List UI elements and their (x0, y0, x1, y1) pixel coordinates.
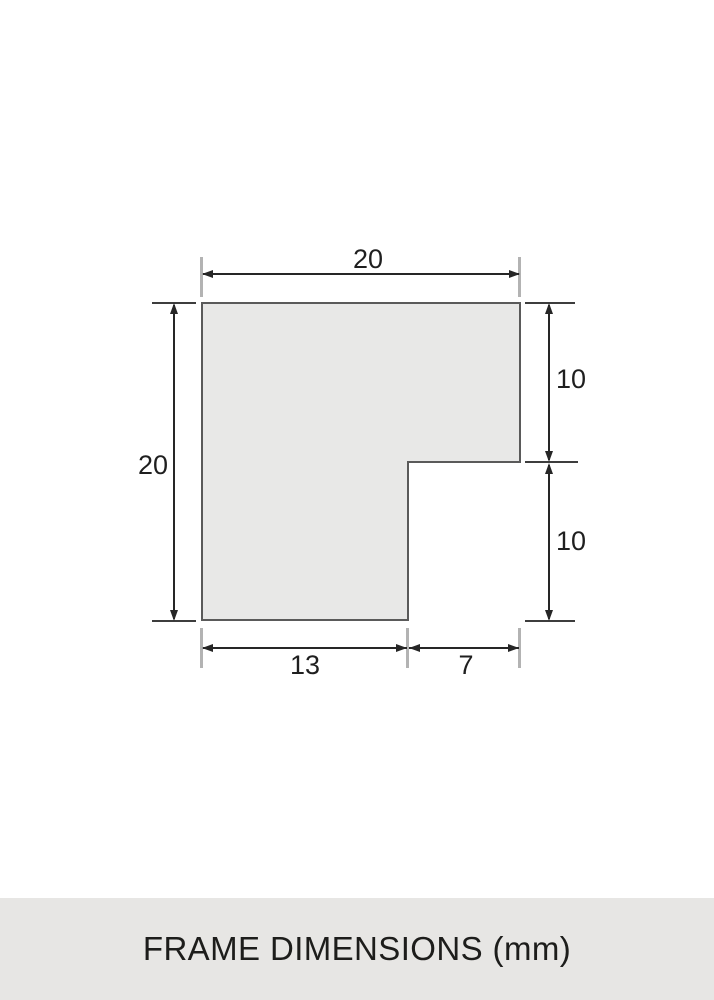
dimension-line-right-upper (548, 305, 550, 460)
arrowhead-top-right (509, 270, 520, 278)
dimension-line-right-lower (548, 465, 550, 619)
arrowhead-right-upper-up (545, 303, 553, 314)
dim-label-right-lower: 10 (556, 528, 612, 554)
dim-label-top-width: 20 (340, 246, 396, 272)
arrowhead-bottom7-right (508, 644, 519, 652)
dim-label-bottom-right: 7 (438, 652, 494, 678)
arrowhead-right-lower-down (545, 610, 553, 621)
dimension-line-bottom-right (409, 647, 519, 649)
arrowhead-left-down (170, 610, 178, 621)
dimension-line-left (173, 305, 175, 619)
dimension-line-bottom-left (203, 647, 407, 649)
arrowhead-bottom13-right (396, 644, 407, 652)
arrowhead-right-upper-down (545, 451, 553, 462)
frame-cross-section-polygon (202, 303, 520, 620)
frame-dimension-diagram: 20 20 10 10 13 7 (0, 0, 714, 1000)
dim-label-left-height: 20 (112, 452, 168, 478)
caption-text: FRAME DIMENSIONS (mm) (143, 930, 571, 968)
dim-label-right-upper: 10 (556, 366, 612, 392)
dim-label-bottom-left: 13 (277, 652, 333, 678)
arrowhead-bottom13-left (202, 644, 213, 652)
arrowhead-right-lower-up (545, 463, 553, 474)
arrowhead-bottom7-left (409, 644, 420, 652)
footer-bar: FRAME DIMENSIONS (mm) (0, 898, 714, 1000)
page-background: 20 20 10 10 13 7 FRAME D (0, 0, 714, 1000)
arrowhead-left-up (170, 303, 178, 314)
arrowhead-top-left (202, 270, 213, 278)
frame-cross-section-shape (0, 0, 714, 1000)
